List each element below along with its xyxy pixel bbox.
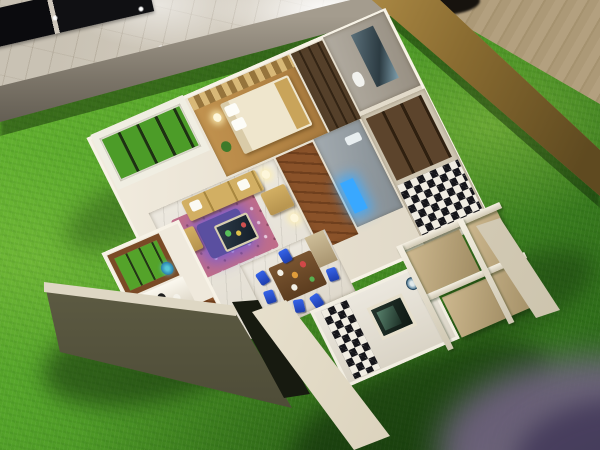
photo-architectural-model xyxy=(0,0,600,450)
photo-vignette xyxy=(0,0,600,450)
